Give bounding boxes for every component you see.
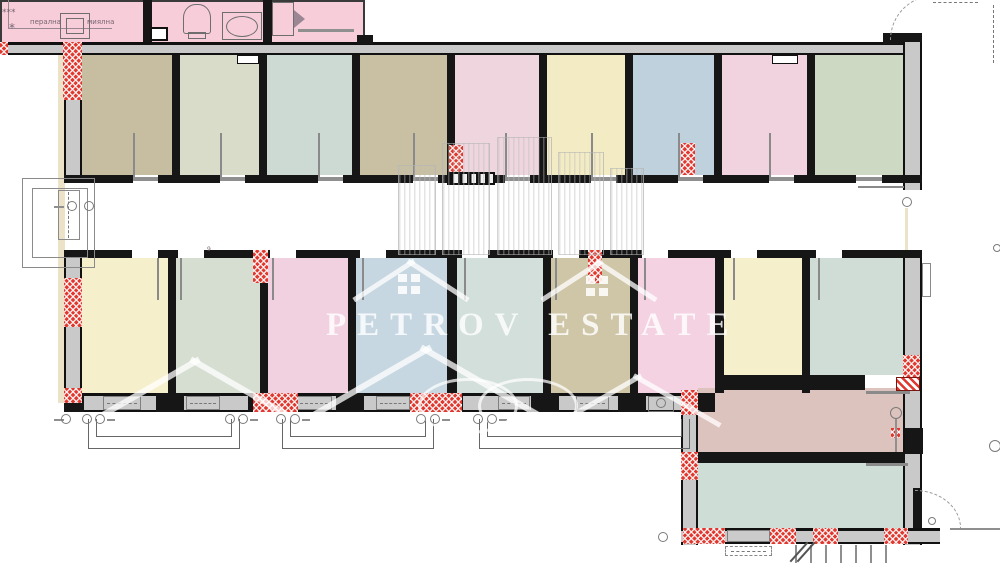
counter-line	[298, 29, 354, 32]
dishwasher-label: миялна	[87, 19, 114, 26]
partition	[352, 55, 360, 177]
corridor-wall	[158, 250, 178, 258]
stair-line	[840, 545, 842, 563]
dim-marker	[82, 414, 92, 424]
wall	[263, 0, 272, 42]
watermark-building	[398, 165, 436, 255]
door-marker	[928, 517, 936, 525]
exterior-wall-top	[0, 42, 922, 55]
door-threshold	[678, 177, 703, 181]
corridor-window	[58, 190, 80, 240]
dim-marker	[84, 201, 94, 211]
masonry-hatch-diagonal	[896, 377, 920, 391]
exterior-line	[950, 528, 1000, 530]
door-leaf	[272, 258, 274, 300]
door-threshold	[769, 177, 794, 181]
door-leaf	[318, 133, 320, 177]
stair-line	[885, 545, 887, 563]
corridor-wall	[794, 175, 856, 183]
dim-tick	[107, 419, 115, 421]
door-threshold	[318, 177, 343, 181]
wall-notch	[150, 27, 168, 41]
corridor-window-dash	[68, 192, 69, 238]
watermark-window	[398, 286, 407, 294]
wall-stub	[905, 428, 923, 454]
masonry-hatch	[253, 250, 268, 283]
niche	[237, 55, 259, 64]
annex-divider-wall	[698, 452, 905, 463]
dim-marker	[658, 532, 668, 542]
door-leaf	[866, 391, 910, 394]
room-annex-green	[698, 463, 905, 528]
wall-stub	[156, 393, 184, 412]
wall-pilaster-outline	[922, 263, 931, 297]
masonry-hatch	[770, 528, 796, 544]
room-top-7	[633, 55, 714, 175]
exterior-wall-right	[903, 42, 922, 190]
watermark-building	[442, 143, 490, 255]
masonry-hatch	[681, 143, 695, 175]
door-leaf	[818, 258, 820, 300]
basin-marker	[656, 398, 666, 408]
dim-marker	[473, 414, 483, 424]
watermark-window	[411, 286, 420, 294]
floor-plan-canvas: PETROV ESTATE ****пералнамиялна9	[0, 0, 1000, 563]
door-leaf	[678, 133, 680, 177]
shower-cabin-icon	[272, 2, 294, 36]
shower-door-icon	[294, 10, 305, 28]
dim-tick	[302, 419, 310, 421]
partition	[714, 55, 722, 177]
wall-stub	[618, 393, 646, 412]
balcony-bracket	[96, 419, 232, 437]
room-bottom-9	[810, 258, 903, 375]
dim-marker	[416, 414, 426, 424]
annex-wall-top	[715, 375, 865, 390]
window-dash	[380, 403, 406, 404]
door-swing-arc	[890, 0, 935, 40]
washing-machine-drum-icon	[66, 18, 84, 34]
corridor-wall	[842, 250, 922, 258]
dim-text: 9	[207, 247, 211, 253]
dim-marker	[67, 201, 77, 211]
toilet-icon	[183, 4, 211, 34]
stars-label: ***	[2, 9, 16, 18]
door-leaf	[157, 258, 159, 300]
room-top-3	[267, 55, 352, 175]
dim-marker	[430, 414, 440, 424]
partition	[807, 55, 815, 177]
watermark-building	[610, 168, 644, 255]
dim-marker	[487, 414, 497, 424]
door-swing-arc	[915, 490, 961, 528]
watermark-window	[411, 274, 420, 282]
toilet-base-icon	[188, 32, 206, 39]
partition	[802, 258, 810, 393]
partition	[259, 55, 267, 177]
stair-line	[825, 545, 827, 563]
door-leaf	[769, 133, 771, 177]
masonry-hatch	[64, 278, 82, 327]
corridor-wall	[296, 250, 360, 258]
riser-marker	[890, 407, 902, 419]
corridor-wall	[757, 250, 816, 258]
dim-marker	[902, 197, 912, 207]
door-leaf	[733, 258, 735, 300]
dashed-line	[933, 2, 978, 3]
dim-tick	[54, 206, 64, 208]
door-leaf	[866, 463, 908, 466]
masonry-hatch	[63, 42, 82, 100]
corridor-wall	[882, 175, 922, 183]
dim-marker	[225, 414, 235, 424]
watermark-building	[497, 137, 552, 255]
corridor-wall	[703, 175, 769, 183]
window-dash	[731, 551, 766, 552]
door-threshold	[133, 177, 158, 181]
room-top-8	[722, 55, 807, 175]
room-top-1	[82, 55, 172, 175]
wall-step	[357, 35, 373, 44]
room-bottom-1	[82, 258, 168, 393]
masonry-hatch	[813, 528, 838, 544]
partition	[172, 55, 180, 177]
dim-marker	[238, 414, 248, 424]
sink-basin-icon	[226, 16, 258, 37]
dashed-line	[993, 5, 994, 63]
watermark-window	[599, 288, 608, 296]
dim-marker	[290, 414, 300, 424]
door-leaf	[133, 133, 135, 177]
window-dash	[300, 403, 328, 404]
partition	[625, 55, 633, 177]
dim-marker	[993, 244, 1000, 252]
star-label: *	[9, 22, 15, 34]
corridor-wall	[158, 175, 220, 183]
corridor-wall	[668, 250, 731, 258]
dim-tick	[250, 419, 258, 421]
balcony-bracket	[290, 419, 426, 437]
watermark-building	[558, 152, 604, 255]
room-annex-rose	[698, 388, 905, 452]
masonry-hatch	[681, 452, 698, 480]
room-top-9	[815, 55, 903, 175]
facade-line	[905, 208, 908, 250]
window	[727, 530, 770, 542]
door-leaf	[220, 133, 222, 177]
stair-line	[870, 545, 872, 563]
dim-marker	[276, 414, 286, 424]
riser-stem	[895, 419, 897, 452]
masonry-hatch	[683, 528, 725, 544]
room-top-4	[360, 55, 447, 175]
dim-marker	[989, 440, 1000, 452]
watermark-window	[586, 276, 595, 284]
masonry-hatch	[884, 528, 908, 544]
watermark-window	[599, 276, 608, 284]
masonry-hatch	[0, 42, 8, 55]
door-leaf	[858, 186, 904, 188]
door-threshold	[856, 177, 882, 181]
niche	[772, 55, 798, 64]
door-threshold	[220, 177, 245, 181]
corridor-wall	[245, 175, 318, 183]
window-dash	[190, 403, 216, 404]
door-leaf	[180, 258, 182, 300]
watermark-ellipse	[478, 378, 578, 434]
laundry-label: перална	[30, 19, 61, 26]
masonry-hatch	[64, 388, 82, 403]
watermark-text: PETROV ESTATE	[326, 307, 706, 344]
dim-marker	[95, 414, 105, 424]
dim-marker	[61, 414, 71, 424]
stair-line	[855, 545, 857, 563]
watermark-window	[586, 288, 595, 296]
watermark-window	[398, 274, 407, 282]
